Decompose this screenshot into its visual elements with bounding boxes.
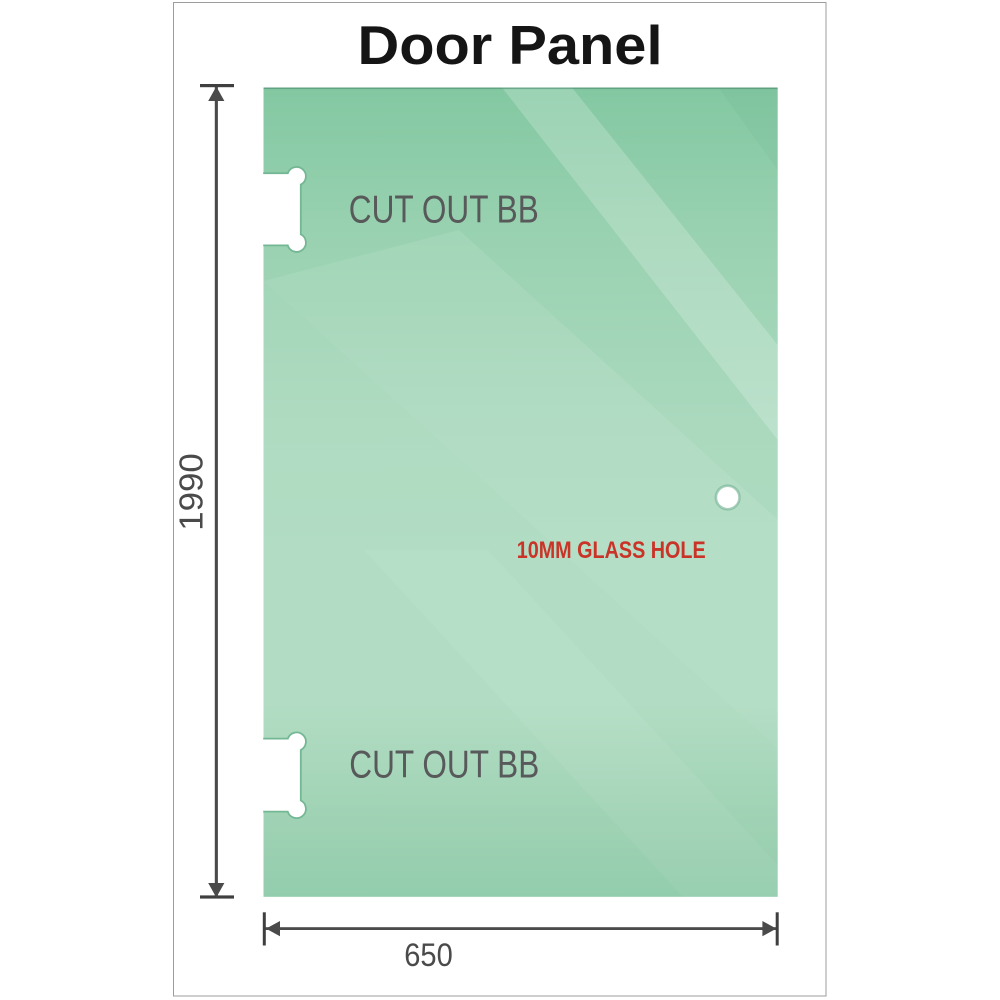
svg-text:Door Panel: Door Panel bbox=[358, 14, 663, 76]
svg-text:CUT OUT BB: CUT OUT BB bbox=[349, 743, 539, 786]
svg-text:650: 650 bbox=[404, 937, 453, 973]
svg-text:10MM GLASS HOLE: 10MM GLASS HOLE bbox=[517, 537, 706, 564]
svg-text:1990: 1990 bbox=[172, 453, 209, 531]
svg-text:CUT OUT BB: CUT OUT BB bbox=[349, 189, 539, 232]
